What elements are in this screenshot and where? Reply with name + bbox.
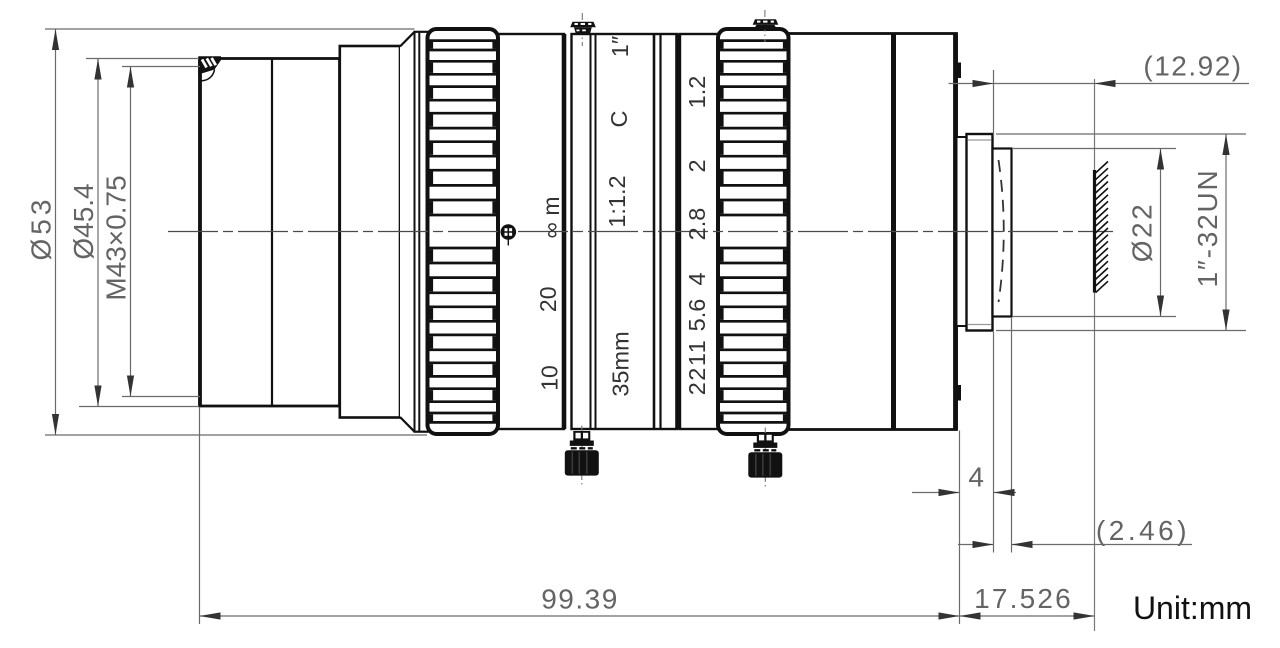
svg-text:C: C [606, 110, 632, 127]
svg-text:(2.46): (2.46) [1096, 515, 1190, 546]
svg-text:17.526: 17.526 [974, 583, 1073, 614]
svg-text:5.6: 5.6 [684, 299, 710, 332]
svg-text:20: 20 [535, 287, 561, 313]
svg-text:∞ m: ∞ m [538, 197, 564, 239]
svg-text:4: 4 [968, 462, 984, 493]
svg-text:2.8: 2.8 [684, 208, 710, 241]
svg-text:1″-32UN: 1″-32UN [1192, 169, 1223, 288]
svg-text:35mm: 35mm [608, 331, 634, 396]
svg-text:1″: 1″ [607, 36, 633, 57]
svg-text:Ø22: Ø22 [1127, 202, 1158, 262]
svg-text:Ø45.4: Ø45.4 [68, 183, 99, 259]
svg-text:(12.92): (12.92) [1143, 51, 1242, 82]
svg-text:10: 10 [537, 365, 563, 391]
svg-text:Unit:mm: Unit:mm [1133, 590, 1252, 626]
svg-text:Ø53: Ø53 [26, 196, 57, 261]
svg-text:M43×0.75: M43×0.75 [101, 175, 132, 300]
svg-text:1.2: 1.2 [684, 76, 710, 109]
svg-text:2: 2 [684, 159, 710, 172]
svg-text:4: 4 [684, 272, 710, 285]
svg-text:1:1.2: 1:1.2 [604, 175, 630, 227]
svg-text:99.39: 99.39 [541, 584, 619, 615]
svg-text:2211: 2211 [684, 339, 710, 396]
